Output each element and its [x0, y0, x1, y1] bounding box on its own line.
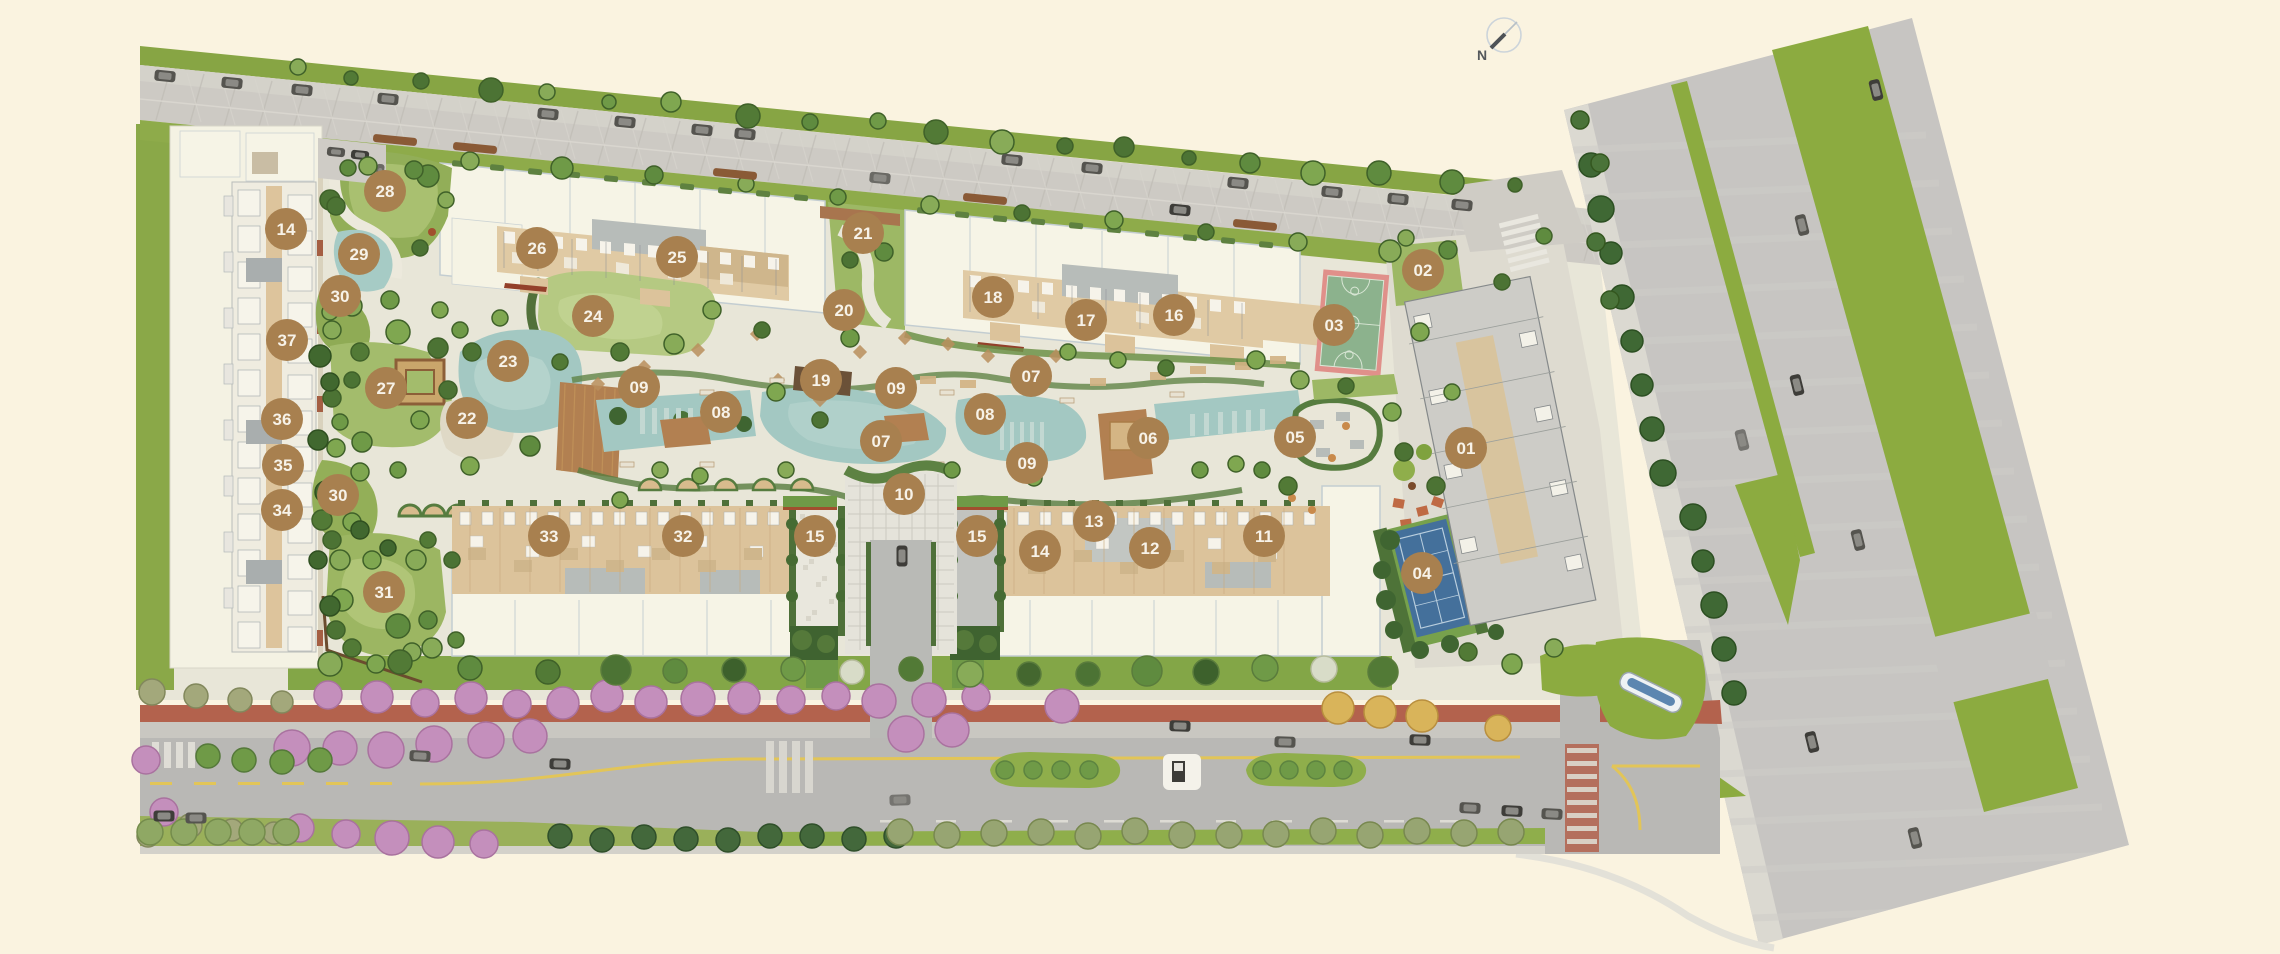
svg-text:09: 09: [630, 378, 649, 397]
svg-text:18: 18: [984, 288, 1003, 307]
svg-text:23: 23: [499, 352, 518, 371]
svg-text:05: 05: [1286, 428, 1305, 447]
svg-text:25: 25: [668, 248, 687, 267]
svg-text:07: 07: [872, 432, 891, 451]
svg-text:12: 12: [1141, 539, 1160, 558]
svg-text:34: 34: [273, 501, 292, 520]
svg-text:35: 35: [274, 456, 293, 475]
svg-text:36: 36: [273, 410, 292, 429]
svg-text:26: 26: [528, 239, 547, 258]
svg-text:19: 19: [812, 371, 831, 390]
svg-text:31: 31: [375, 583, 394, 602]
svg-text:09: 09: [1018, 454, 1037, 473]
svg-text:08: 08: [712, 403, 731, 422]
svg-text:22: 22: [458, 409, 477, 428]
svg-text:37: 37: [278, 331, 297, 350]
svg-text:20: 20: [835, 301, 854, 320]
svg-text:N: N: [1477, 47, 1487, 63]
svg-text:04: 04: [1413, 564, 1432, 583]
svg-text:29: 29: [350, 245, 369, 264]
svg-text:08: 08: [976, 405, 995, 424]
svg-text:13: 13: [1085, 512, 1104, 531]
svg-text:06: 06: [1139, 429, 1158, 448]
svg-text:01: 01: [1457, 439, 1476, 458]
svg-text:28: 28: [376, 182, 395, 201]
svg-text:02: 02: [1414, 261, 1433, 280]
svg-text:07: 07: [1022, 367, 1041, 386]
svg-text:33: 33: [540, 527, 559, 546]
svg-text:14: 14: [1031, 542, 1050, 561]
svg-text:15: 15: [806, 527, 825, 546]
svg-text:09: 09: [887, 379, 906, 398]
svg-text:32: 32: [674, 527, 693, 546]
svg-text:21: 21: [854, 224, 873, 243]
svg-text:14: 14: [277, 220, 296, 239]
svg-text:30: 30: [331, 287, 350, 306]
svg-text:03: 03: [1325, 316, 1344, 335]
svg-text:24: 24: [584, 307, 603, 326]
svg-text:17: 17: [1077, 311, 1096, 330]
svg-text:10: 10: [895, 485, 914, 504]
svg-text:11: 11: [1255, 527, 1273, 546]
svg-text:27: 27: [377, 379, 396, 398]
svg-text:15: 15: [968, 527, 987, 546]
svg-text:30: 30: [329, 486, 348, 505]
svg-text:16: 16: [1165, 306, 1184, 325]
